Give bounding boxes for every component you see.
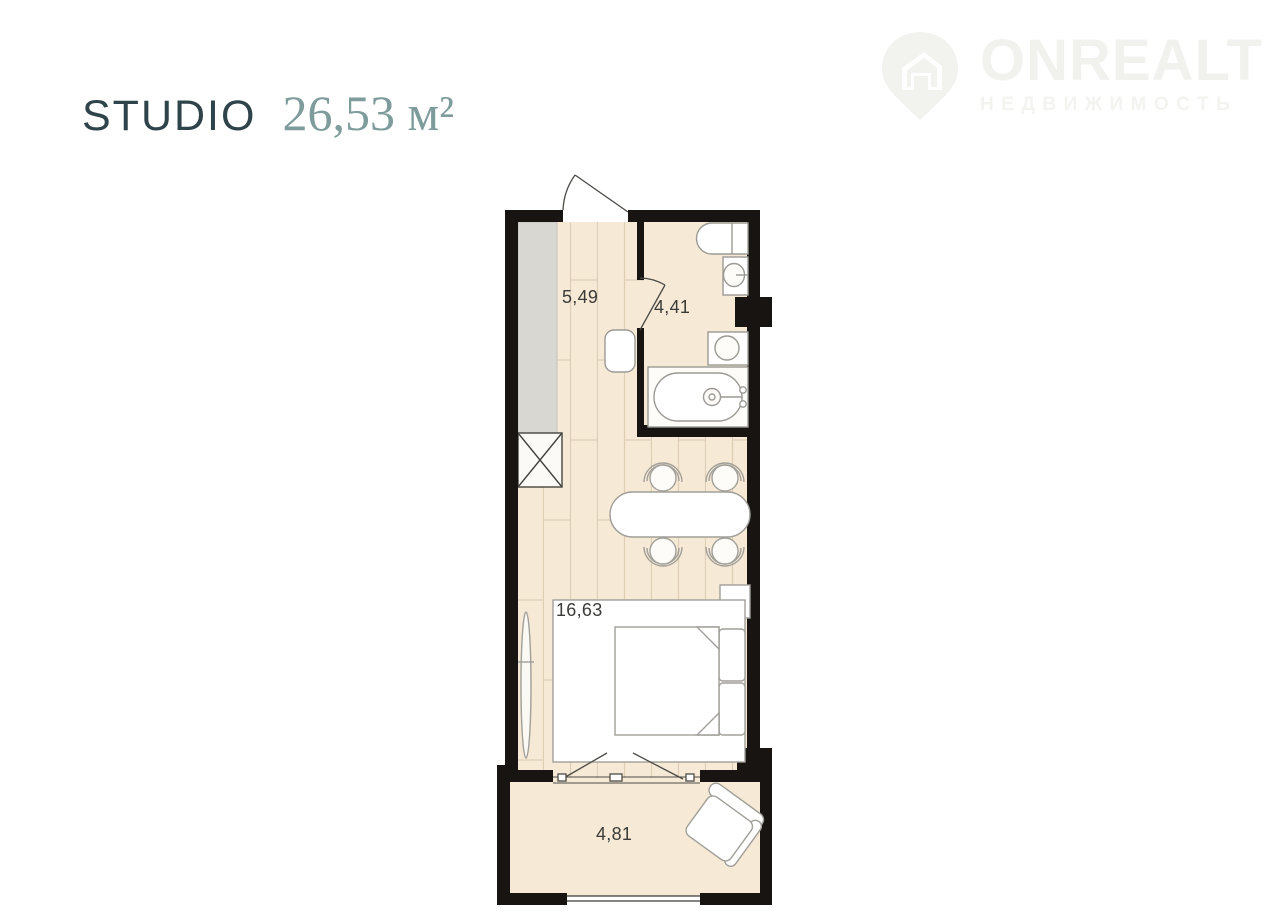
crossed-closet xyxy=(518,433,562,487)
room-area-label-hallway: 5,49 xyxy=(562,288,598,306)
brand-watermark: ONREALT НЕДВИЖИМОСТЬ xyxy=(872,26,1263,122)
stool xyxy=(605,330,635,372)
wall-right xyxy=(747,210,760,770)
washbasin xyxy=(723,257,748,295)
room-area-label-balcony: 4,81 xyxy=(596,825,632,843)
wardrobe xyxy=(518,222,557,433)
room-area-label-bathroom: 4,41 xyxy=(654,298,690,316)
washing-machine xyxy=(708,332,748,365)
brand-text: ONREALT НЕДВИЖИМОСТЬ xyxy=(980,32,1263,116)
house-pin-icon xyxy=(872,26,968,122)
wall-left xyxy=(505,210,518,782)
brand-tagline: НЕДВИЖИМОСТЬ xyxy=(980,94,1263,116)
dining-table xyxy=(610,492,750,537)
wall-bathroom-lower xyxy=(637,328,644,437)
room-area-label-living-room: 16,63 xyxy=(556,601,603,619)
floor-plan-drawing xyxy=(490,160,790,910)
balcony-window xyxy=(567,896,700,901)
shaft xyxy=(735,297,772,327)
wall-bottom-left xyxy=(505,770,553,782)
page-title: STUDIO 26,53 м² xyxy=(82,88,454,138)
plan-area-value: 26,53 м² xyxy=(282,88,454,138)
wall-bathroom-upper xyxy=(637,222,644,280)
balcony-wall-bottom-right xyxy=(700,893,772,905)
bathtub xyxy=(648,367,748,427)
plan-type-title: STUDIO xyxy=(82,95,256,138)
pillow xyxy=(719,683,745,735)
pillow xyxy=(719,629,745,681)
balcony-wall-left xyxy=(497,765,510,905)
balcony-wall-right xyxy=(760,770,772,905)
brand-name: ONREALT xyxy=(980,32,1263,90)
balcony-wall-bottom-left xyxy=(497,893,567,905)
floor-plan xyxy=(490,160,790,910)
wall-top-right xyxy=(628,210,760,222)
toilet xyxy=(697,223,749,254)
mattress xyxy=(615,627,719,735)
bed xyxy=(553,600,745,762)
page: { "header": { "plan_type": "STUDIO", "ar… xyxy=(0,0,1280,910)
entry-door xyxy=(563,175,628,212)
